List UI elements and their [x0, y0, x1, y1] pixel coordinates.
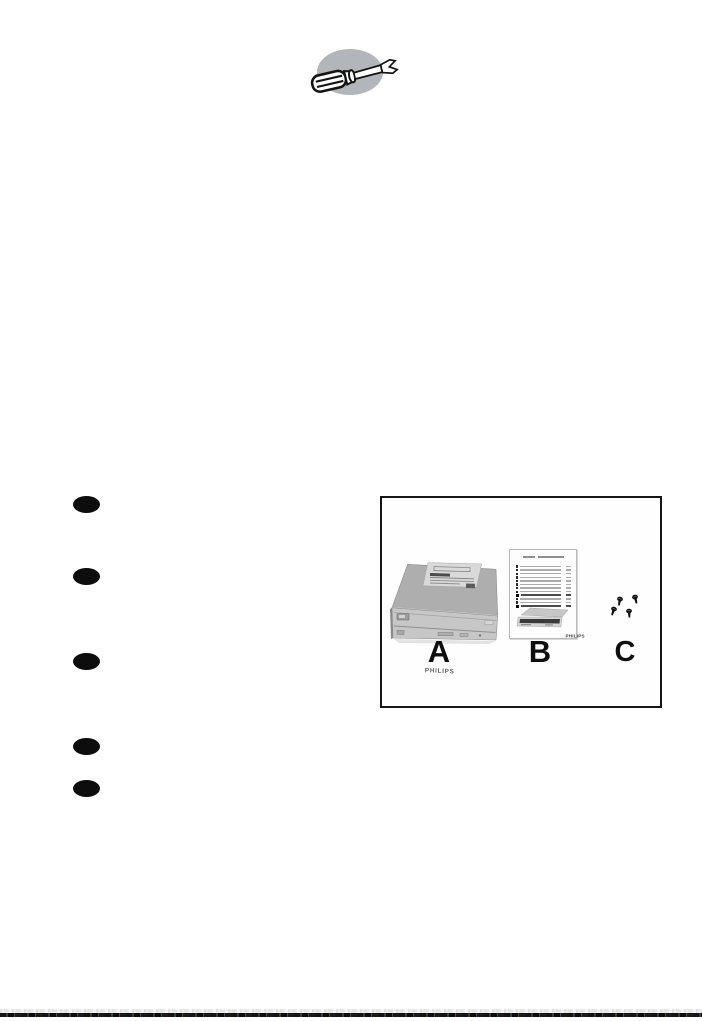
guide-toc-rows [516, 565, 571, 608]
screws-image [605, 590, 647, 628]
list-bullet [73, 568, 100, 585]
package-contents-figure: PHILIPS PHILIPS [380, 496, 662, 708]
screwdriver-icon [303, 42, 403, 104]
list-bullet [73, 653, 100, 670]
cd-drive-image: PHILIPS [390, 552, 504, 646]
list-bullet [73, 496, 100, 513]
list-bullet [73, 738, 100, 755]
list-bullet [73, 780, 100, 797]
cut-line [0, 1013, 702, 1017]
guide-drive-thumbnail [515, 606, 572, 630]
item-label-a: A [404, 636, 474, 667]
document-page: PHILIPS PHILIPS [0, 0, 702, 1021]
item-label-b: B [505, 636, 575, 667]
item-label-c: C [590, 638, 660, 667]
guide-title-line [510, 556, 576, 559]
quick-install-guide-image: PHILIPS [509, 549, 577, 639]
